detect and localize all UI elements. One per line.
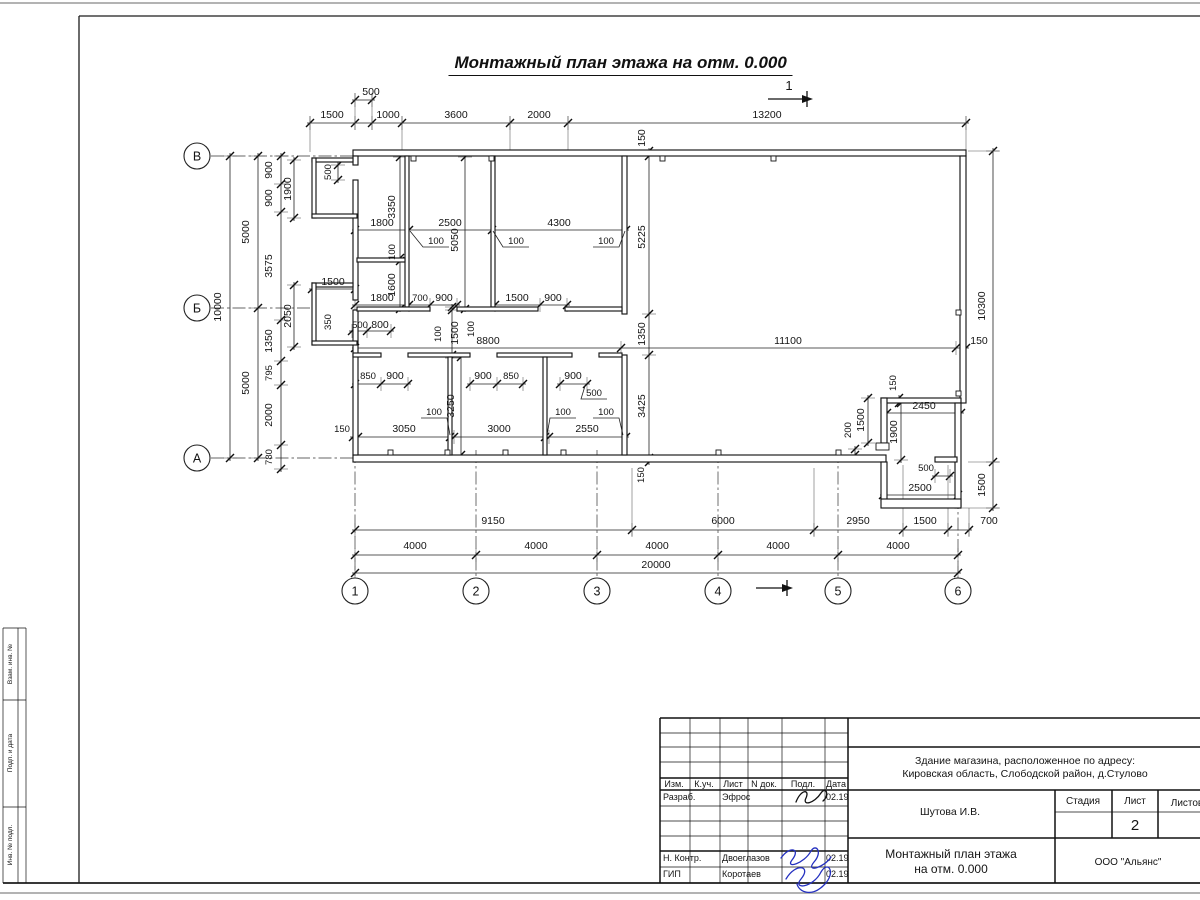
porch-nw-wall: [312, 158, 353, 162]
dim-label: 10000: [212, 292, 224, 321]
dim-label: 3600: [444, 109, 468, 121]
dim-label: 3350: [386, 195, 398, 219]
title-block-label: Дата: [826, 779, 846, 789]
dim-label: 2500: [908, 482, 932, 494]
section-mark-bottom: [756, 580, 793, 596]
dim-label: 5050: [449, 228, 461, 252]
dim-label: 100: [598, 407, 614, 418]
grid-bubble-label: 5: [835, 585, 842, 599]
dim-label: 1500: [449, 321, 461, 345]
title-block-label: Шутова И.В.: [920, 806, 980, 818]
title-block-label: Подл.: [791, 779, 815, 789]
vestibule-east-wall: [955, 403, 961, 508]
dim-label: 4000: [645, 540, 669, 552]
dim-label: 1500: [913, 515, 937, 527]
dim-label: 100: [508, 236, 524, 247]
grid-bubble-label: А: [193, 452, 202, 466]
left-strip-label: Инв. № подл.: [7, 825, 14, 866]
corridor-north-wall: [565, 307, 622, 311]
title-block-label: ООО "Альянс": [1095, 857, 1162, 868]
dim-label: 1350: [636, 322, 648, 346]
dim-label: 1500: [321, 276, 345, 288]
dim-label: 1350: [263, 329, 275, 353]
corridor-north-wall: [357, 307, 430, 311]
dim-label: 8800: [476, 335, 500, 347]
title-block-label: N док.: [751, 779, 777, 789]
title-block-label: Н. Контр.: [663, 853, 701, 863]
dim-leader: [547, 418, 576, 435]
title-block-label: Монтажный план этажа: [885, 847, 1017, 861]
title-block-label: Разраб.: [663, 792, 695, 802]
vestibule-west-wall: [881, 398, 887, 443]
left-strip-label: Подп. и дата: [7, 733, 14, 772]
dim-leader: [421, 418, 450, 435]
dim-label: 3425: [636, 394, 648, 418]
dim-label: 900: [474, 370, 492, 382]
dim-label: 850: [360, 371, 376, 382]
porch-nw-wall: [312, 214, 357, 218]
partition: [405, 156, 409, 307]
dim-label: 500: [323, 164, 334, 180]
dim-label: 150: [334, 424, 350, 435]
dim-label: 700: [412, 293, 428, 304]
dim-label: 500: [586, 388, 602, 399]
dim-label: 3050: [392, 423, 416, 435]
dim-label: 1500: [320, 109, 344, 121]
dim-label: 4000: [524, 540, 548, 552]
floor-plan-canvas: 5001500100036002000132001150100005000500…: [0, 0, 1200, 900]
grid-bubble-label: 4: [715, 585, 722, 599]
title-block-text: Изм.К.уч.ЛистN док.Подл.ДатаРазраб.Эфрос…: [7, 644, 1200, 879]
dim-label: 2000: [263, 403, 275, 427]
porch-se-slab: [881, 499, 961, 508]
dim-label: 5000: [240, 371, 252, 395]
dim-label: 100: [428, 236, 444, 247]
dim-label: 500: [352, 320, 368, 331]
dim-label: 150: [888, 375, 899, 391]
partition: [543, 357, 547, 455]
dim-label: 900: [564, 370, 582, 382]
dim-label: 1900: [282, 177, 294, 201]
title-block-label: Здание магазина, расположенное по адресу…: [915, 755, 1135, 767]
dim-label: 1000: [376, 109, 400, 121]
drawing-sheet: 5001500100036002000132001150100005000500…: [0, 0, 1200, 900]
corridor-south-wall: [353, 353, 381, 357]
title-block-label: 2: [1131, 817, 1139, 834]
dim-label: 900: [263, 189, 275, 207]
left-strip-label: Взам. инв. №: [7, 644, 14, 684]
wall-hall-west: [622, 355, 627, 455]
dim-label: 2950: [846, 515, 870, 527]
dim-label: 150: [636, 467, 647, 483]
dim-label: 4000: [766, 540, 790, 552]
title-block-label: Коротаев: [722, 869, 761, 879]
dim-label: 10300: [976, 291, 988, 320]
dim-label: 20000: [641, 559, 670, 571]
title-block-label: К.уч.: [694, 779, 713, 789]
dim-label: 900: [435, 292, 453, 304]
grid-bubble-label: Б: [193, 302, 201, 316]
title-block-label: Эфрос: [722, 792, 751, 802]
wall-north: [353, 150, 966, 156]
dim-label: 6000: [711, 515, 735, 527]
porch-sw-wall: [312, 283, 316, 345]
dim-label: 4000: [886, 540, 910, 552]
corridor-south-wall: [497, 353, 572, 357]
wall-hall-west: [622, 156, 627, 314]
dim-label: 2000: [527, 109, 551, 121]
dim-label: 795: [264, 365, 275, 381]
dim-label: 100: [598, 236, 614, 247]
drawing-title: Монтажный план этажа на отм. 0.000: [448, 53, 792, 76]
dim-label: 200: [843, 422, 854, 438]
title-block-label: 02.19: [826, 792, 849, 802]
dim-label: 5225: [636, 225, 648, 249]
grid-bubble-label: В: [193, 150, 201, 164]
title-block-label: Стадия: [1066, 796, 1100, 807]
dim-label: 100: [555, 407, 571, 418]
dim-label: 100: [433, 326, 444, 342]
title-block-label: ГИП: [663, 869, 681, 879]
dim-label: 4000: [403, 540, 427, 552]
dim-label: 5000: [240, 220, 252, 244]
dim-label: 900: [263, 161, 275, 179]
wall-east: [960, 156, 966, 403]
dim-label: 900: [544, 292, 562, 304]
grid-bubble-label: 6: [955, 585, 962, 599]
title-block-label: Лист: [1124, 796, 1146, 807]
dim-label: 3000: [487, 423, 511, 435]
dim-label: 4300: [547, 217, 571, 229]
dim-label: 1500: [505, 292, 529, 304]
dim-label: 150: [970, 335, 988, 347]
grid-bubble-label: 2: [473, 585, 480, 599]
porch-sw-wall: [312, 341, 357, 345]
dim-label: 800: [371, 319, 389, 331]
section-mark-top: [768, 91, 813, 107]
grid-bubble-label: 3: [594, 585, 601, 599]
dim-label: 1500: [976, 473, 988, 497]
wall-south: [353, 455, 886, 462]
dim-label: 150: [636, 129, 648, 147]
wall-west: [353, 156, 358, 165]
dim-label: 1: [785, 78, 792, 93]
wall-west: [353, 310, 358, 455]
signature-black: [796, 790, 827, 802]
dim-label: 100: [387, 244, 398, 260]
dim-label: 850: [503, 371, 519, 382]
title-block-label: Листов: [1171, 798, 1200, 809]
grid-bubble-label: 1: [352, 585, 359, 599]
porch-se-stub: [935, 457, 957, 462]
dim-label: 2550: [575, 423, 599, 435]
corridor-north-wall: [457, 307, 538, 311]
corridor-south-wall: [599, 353, 622, 357]
dim-label: 500: [918, 463, 934, 474]
title-block-label: Изм.: [664, 779, 683, 789]
signature-blue: [786, 867, 830, 892]
dim-label: 500: [362, 86, 380, 98]
dim-label: 350: [323, 314, 334, 330]
dim-label: 1900: [888, 420, 900, 444]
wall-west: [353, 180, 358, 300]
title-block-label: Кировская область, Слободской район, д.С…: [902, 768, 1147, 780]
dim-label: 1500: [855, 408, 867, 432]
corridor-south-wall: [408, 353, 470, 357]
dim-label: 2500: [438, 217, 462, 229]
title-block-label: на отм. 0.000: [914, 862, 988, 876]
dim-label: 900: [386, 370, 404, 382]
dim-label: 780: [264, 449, 275, 465]
dim-label: 2450: [912, 400, 936, 412]
title-block-label: Двоеглазов: [722, 853, 770, 863]
title-block-label: Лист: [723, 779, 743, 789]
dim-label: 2050: [282, 304, 294, 328]
dim-label: 3575: [263, 254, 275, 278]
dim-label: 3250: [445, 394, 457, 418]
porch-nw-wall: [312, 158, 316, 218]
dim-label: 11100: [774, 335, 802, 347]
porch-se-wall: [881, 462, 887, 500]
title-block-label: 02.19: [826, 853, 849, 863]
dim-label: 9150: [481, 515, 505, 527]
dim-label: 1800: [370, 292, 394, 304]
dim-label: 1800: [370, 217, 394, 229]
dim-label: 700: [980, 515, 998, 527]
dim-label: 100: [426, 407, 442, 418]
dim-label: 13200: [752, 109, 781, 121]
